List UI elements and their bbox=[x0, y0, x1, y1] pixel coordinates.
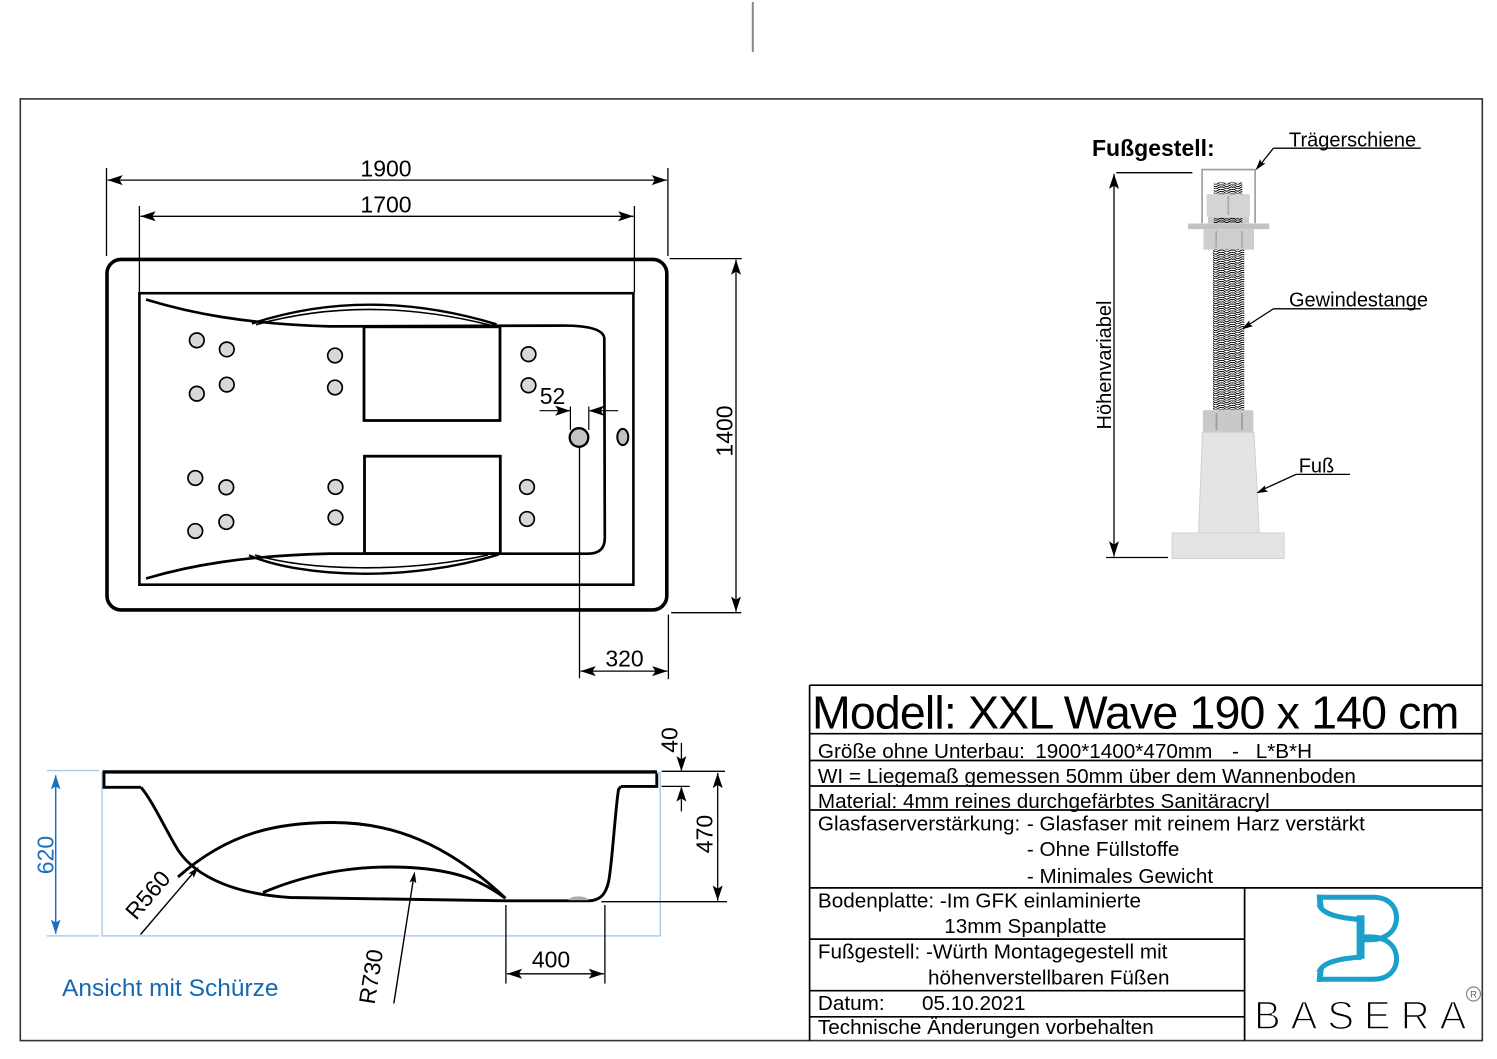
svg-text:Fußgestell: -Würth Montagegest: Fußgestell: -Würth Montagegestell mit bbox=[818, 941, 1168, 964]
svg-text:BASERA: BASERA bbox=[1254, 994, 1476, 1038]
svg-text:Ansicht mit Schürze: Ansicht mit Schürze bbox=[62, 975, 279, 1002]
svg-text:höhenverstellbaren Füßen: höhenverstellbaren Füßen bbox=[928, 967, 1170, 990]
svg-text:Fußgestell:: Fußgestell: bbox=[1092, 135, 1215, 161]
svg-text:Bodenplatte: -Im GFK einlamini: Bodenplatte: -Im GFK einlaminierte bbox=[818, 889, 1141, 912]
svg-text:WI = Liegemaß gemessen 50mm üb: WI = Liegemaß gemessen 50mm über dem Wan… bbox=[818, 765, 1356, 788]
svg-text:05.10.2021: 05.10.2021 bbox=[922, 992, 1026, 1015]
svg-text:-: - bbox=[1232, 740, 1239, 763]
svg-text:Technische Änderungen vorbehal: Technische Änderungen vorbehalten bbox=[818, 1016, 1154, 1039]
svg-text:Datum:: Datum: bbox=[818, 992, 885, 1015]
svg-text:Größe ohne Unterbau:: Größe ohne Unterbau: bbox=[818, 740, 1025, 763]
svg-text:1700: 1700 bbox=[360, 192, 411, 218]
svg-text:Glasfaserverstärkung:: Glasfaserverstärkung: bbox=[818, 813, 1020, 836]
svg-text:1400: 1400 bbox=[711, 405, 737, 456]
svg-text:470: 470 bbox=[692, 815, 718, 853]
svg-text:R: R bbox=[1470, 990, 1477, 1001]
svg-text:- Minimales Gewicht: - Minimales Gewicht bbox=[1027, 865, 1213, 888]
svg-text:1900: 1900 bbox=[360, 156, 411, 182]
svg-text:400: 400 bbox=[532, 947, 570, 973]
svg-text:1900*1400*470mm: 1900*1400*470mm bbox=[1035, 740, 1212, 763]
svg-text:- Glasfaser mit reinem Harz ve: - Glasfaser mit reinem Harz verstärkt bbox=[1027, 813, 1365, 836]
svg-text:- Ohne Füllstoffe: - Ohne Füllstoffe bbox=[1027, 838, 1180, 861]
svg-text:40: 40 bbox=[657, 727, 683, 753]
svg-text:Höhenvariabel: Höhenvariabel bbox=[1094, 301, 1116, 430]
svg-text:L*B*H: L*B*H bbox=[1256, 740, 1312, 763]
svg-text:Modell: XXL Wave 190 x 140 cm: Modell: XXL Wave 190 x 140 cm bbox=[812, 687, 1458, 739]
svg-text:13mm Spanplatte: 13mm Spanplatte bbox=[944, 915, 1106, 938]
svg-text:52: 52 bbox=[540, 383, 566, 409]
svg-text:Material: 4mm reines durchgefä: Material: 4mm reines durchgefärbtes Sani… bbox=[818, 790, 1270, 813]
svg-text:320: 320 bbox=[605, 646, 643, 672]
svg-text:620: 620 bbox=[33, 836, 59, 874]
